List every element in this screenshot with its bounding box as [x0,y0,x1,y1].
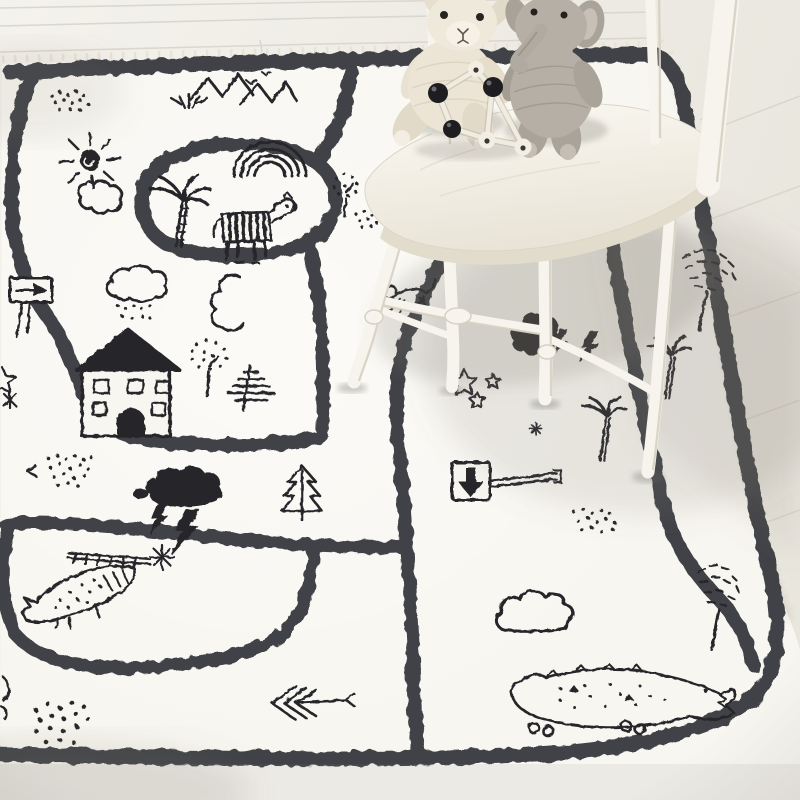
vignette [0,0,800,800]
photo-kids-rug-scene [0,0,800,800]
